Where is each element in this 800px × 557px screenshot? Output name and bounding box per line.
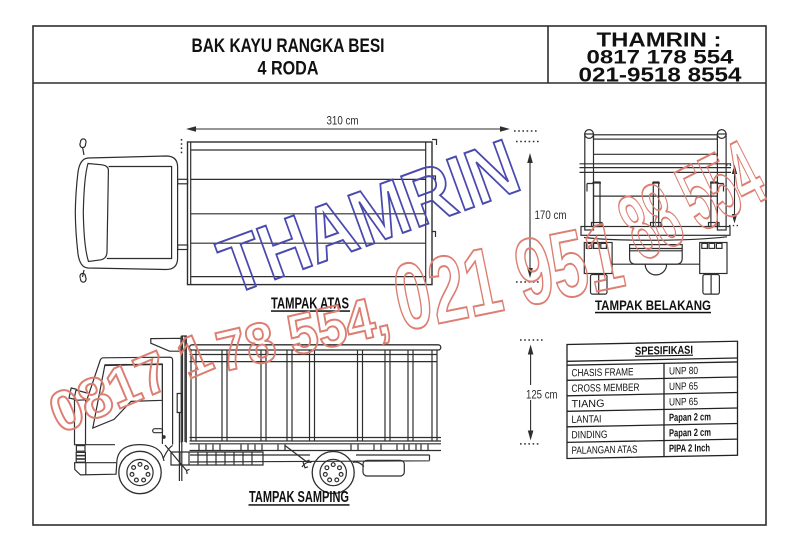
svg-text:Papan 2 cm: Papan 2 cm (669, 427, 711, 440)
svg-text:BAK KAYU RANGKA BESI: BAK KAYU RANGKA BESI (192, 35, 385, 57)
svg-text:310 cm: 310 cm (327, 114, 359, 128)
svg-text:PALANGAN ATAS: PALANGAN ATAS (572, 444, 638, 457)
svg-text:UNP 65: UNP 65 (669, 396, 698, 409)
svg-text:LANTAI: LANTAI (572, 413, 602, 426)
svg-text:4 RODA: 4 RODA (258, 58, 319, 80)
svg-text:TAMPAK SAMPING: TAMPAK SAMPING (249, 489, 349, 506)
svg-text:125 cm: 125 cm (526, 389, 558, 401)
svg-text:UNP 80: UNP 80 (669, 365, 698, 378)
svg-text:Papan 2 cm: Papan 2 cm (669, 411, 711, 424)
svg-text:CROSS MEMBER: CROSS MEMBER (572, 382, 640, 395)
svg-text:021-9518 8554: 021-9518 8554 (579, 64, 743, 87)
svg-text:UNP 65: UNP 65 (669, 380, 698, 393)
svg-text:TIANG: TIANG (572, 398, 605, 411)
svg-text:DINDING: DINDING (572, 429, 608, 442)
svg-text:SPESIFIKASI: SPESIFIKASI (635, 345, 693, 358)
svg-text:PIPA 2 Inch: PIPA 2 Inch (669, 442, 710, 455)
svg-text:CHASIS FRAME: CHASIS FRAME (572, 366, 634, 379)
